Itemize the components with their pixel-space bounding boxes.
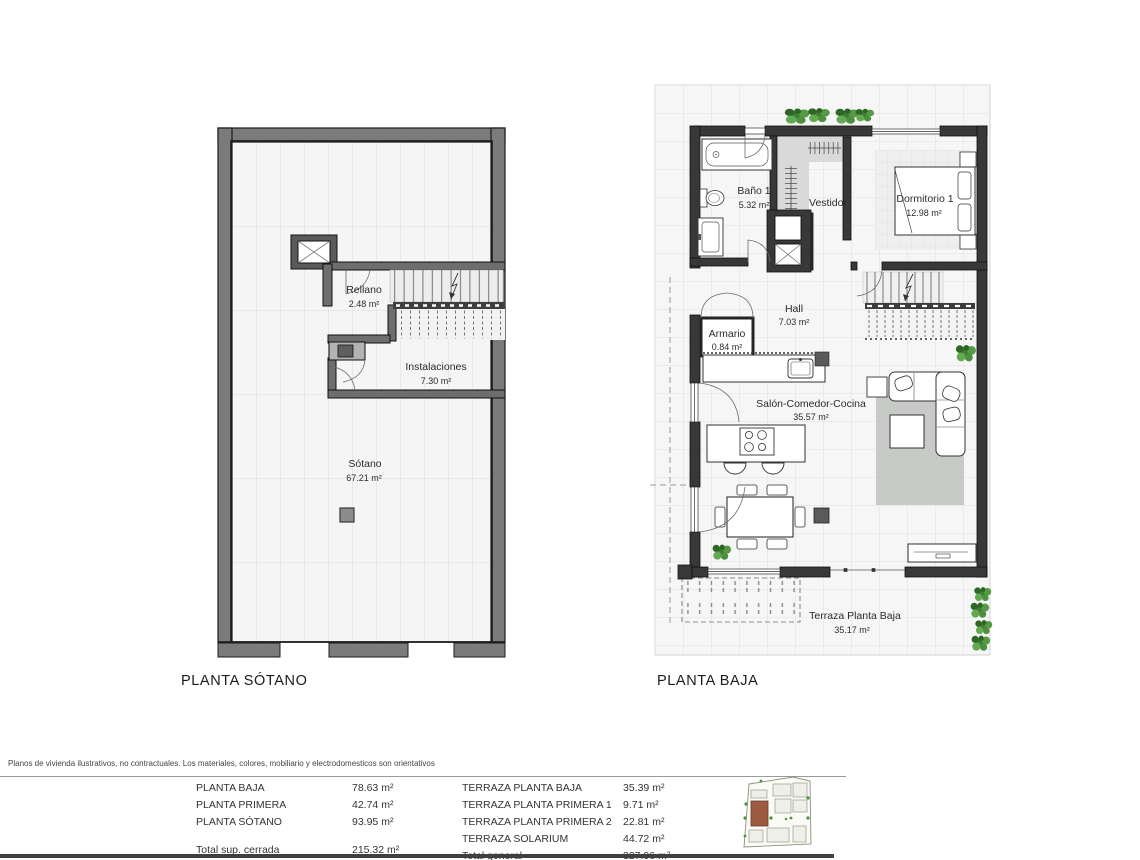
room-label-hall: Hall bbox=[785, 303, 803, 315]
table-row: PLANTA SÓTANO 93.95 m² bbox=[196, 814, 426, 831]
table-row: TERRAZA SOLARIUM 44.72 m² bbox=[462, 831, 702, 848]
row-value: 9.71 m² bbox=[623, 797, 702, 814]
row-value: 93.95 m² bbox=[352, 814, 426, 831]
bathtub-icon bbox=[702, 139, 772, 170]
disclaimer-text: Planos de vivienda ilustrativos, no cont… bbox=[8, 759, 435, 768]
room-label-sotano: Sótano bbox=[348, 458, 381, 470]
row-value: 22.81 m² bbox=[623, 814, 702, 831]
footer-bottom-bar bbox=[0, 854, 834, 858]
baja-elevator-shaft-icon bbox=[767, 210, 811, 272]
room-label-bano: Baño 1 bbox=[737, 185, 770, 197]
room-label-dormitorio: Dormitorio 1 bbox=[896, 193, 953, 205]
coffee-table-icon bbox=[890, 415, 924, 448]
row-value: 42.74 m² bbox=[352, 797, 426, 814]
row-label: PLANTA SÓTANO bbox=[196, 814, 352, 831]
pergola-icon bbox=[682, 578, 800, 622]
room-area-armario: 0.84 m² bbox=[712, 342, 743, 352]
column-icon bbox=[814, 508, 829, 523]
room-area-bano: 5.32 m² bbox=[739, 200, 770, 210]
duct-box-icon bbox=[329, 342, 365, 360]
room-area-dormitorio: 12.98 m² bbox=[906, 208, 942, 218]
plan-baja-drawing: Baño 1 5.32 m² Vestidor Dormitorio 1 12.… bbox=[648, 82, 998, 662]
floorplan-sheet: Rellano 2.48 m² Instalaciones 7.30 m² Só… bbox=[0, 0, 1140, 860]
side-table-icon bbox=[867, 377, 887, 397]
row-value: 35.39 m² bbox=[623, 780, 702, 797]
row-label: PLANTA PRIMERA bbox=[196, 797, 352, 814]
sink-vanity-icon bbox=[698, 218, 723, 256]
row-value: 78.63 m² bbox=[352, 780, 426, 797]
plan-sotano-drawing: Rellano 2.48 m² Instalaciones 7.30 m² Só… bbox=[205, 118, 515, 678]
baja-plan-title: PLANTA BAJA bbox=[657, 673, 758, 689]
room-label-instalaciones: Instalaciones bbox=[405, 361, 466, 373]
room-label-armario: Armario bbox=[709, 328, 746, 340]
toilet-icon bbox=[700, 189, 724, 207]
kitchen-counter-icon bbox=[703, 352, 829, 382]
room-area-hall: 7.03 m² bbox=[779, 317, 810, 327]
row-value: 44.72 m² bbox=[623, 831, 702, 848]
room-label-vestidor: Vestidor bbox=[809, 197, 847, 209]
sotano-plan-title: PLANTA SÓTANO bbox=[181, 673, 308, 689]
row-label: TERRAZA PLANTA BAJA bbox=[462, 780, 623, 797]
row-label: TERRAZA PLANTA PRIMERA 1 bbox=[462, 797, 623, 814]
room-area-sotano: 67.21 m² bbox=[346, 473, 382, 483]
room-label-salon: Salón-Comedor-Cocina bbox=[756, 398, 866, 410]
sotano-stairs-icon bbox=[390, 270, 505, 340]
room-area-rellano: 2.48 m² bbox=[349, 299, 380, 309]
row-label: PLANTA BAJA bbox=[196, 780, 352, 797]
site-plan-minimap bbox=[731, 774, 821, 853]
room-label-rellano: Rellano bbox=[346, 284, 382, 296]
table-row: PLANTA BAJA 78.63 m² bbox=[196, 780, 426, 797]
kitchen-island-hob-icon bbox=[707, 425, 805, 462]
closed-surfaces-table: PLANTA BAJA 78.63 m² PLANTA PRIMERA 42.7… bbox=[196, 780, 426, 859]
table-row: TERRAZA PLANTA BAJA 35.39 m² bbox=[462, 780, 702, 797]
room-label-terraza: Terraza Planta Baja bbox=[809, 610, 901, 622]
terrace-surfaces-table: TERRAZA PLANTA BAJA 35.39 m² TERRAZA PLA… bbox=[462, 780, 702, 860]
footer-divider-line bbox=[0, 776, 846, 777]
table-row: TERRAZA PLANTA PRIMERA 2 22.81 m² bbox=[462, 814, 702, 831]
room-area-salon: 35.57 m² bbox=[793, 412, 829, 422]
column-icon bbox=[340, 508, 354, 522]
sideboard-icon bbox=[908, 544, 976, 562]
room-area-instalaciones: 7.30 m² bbox=[421, 376, 452, 386]
row-label: TERRAZA PLANTA PRIMERA 2 bbox=[462, 814, 623, 831]
table-row: TERRAZA PLANTA PRIMERA 1 9.71 m² bbox=[462, 797, 702, 814]
highlighted-lot bbox=[751, 801, 768, 826]
table-row: PLANTA PRIMERA 42.74 m² bbox=[196, 797, 426, 814]
sotano-bottom-wall bbox=[218, 642, 505, 657]
room-area-terraza: 35.17 m² bbox=[834, 625, 870, 635]
row-label: TERRAZA SOLARIUM bbox=[462, 831, 623, 848]
